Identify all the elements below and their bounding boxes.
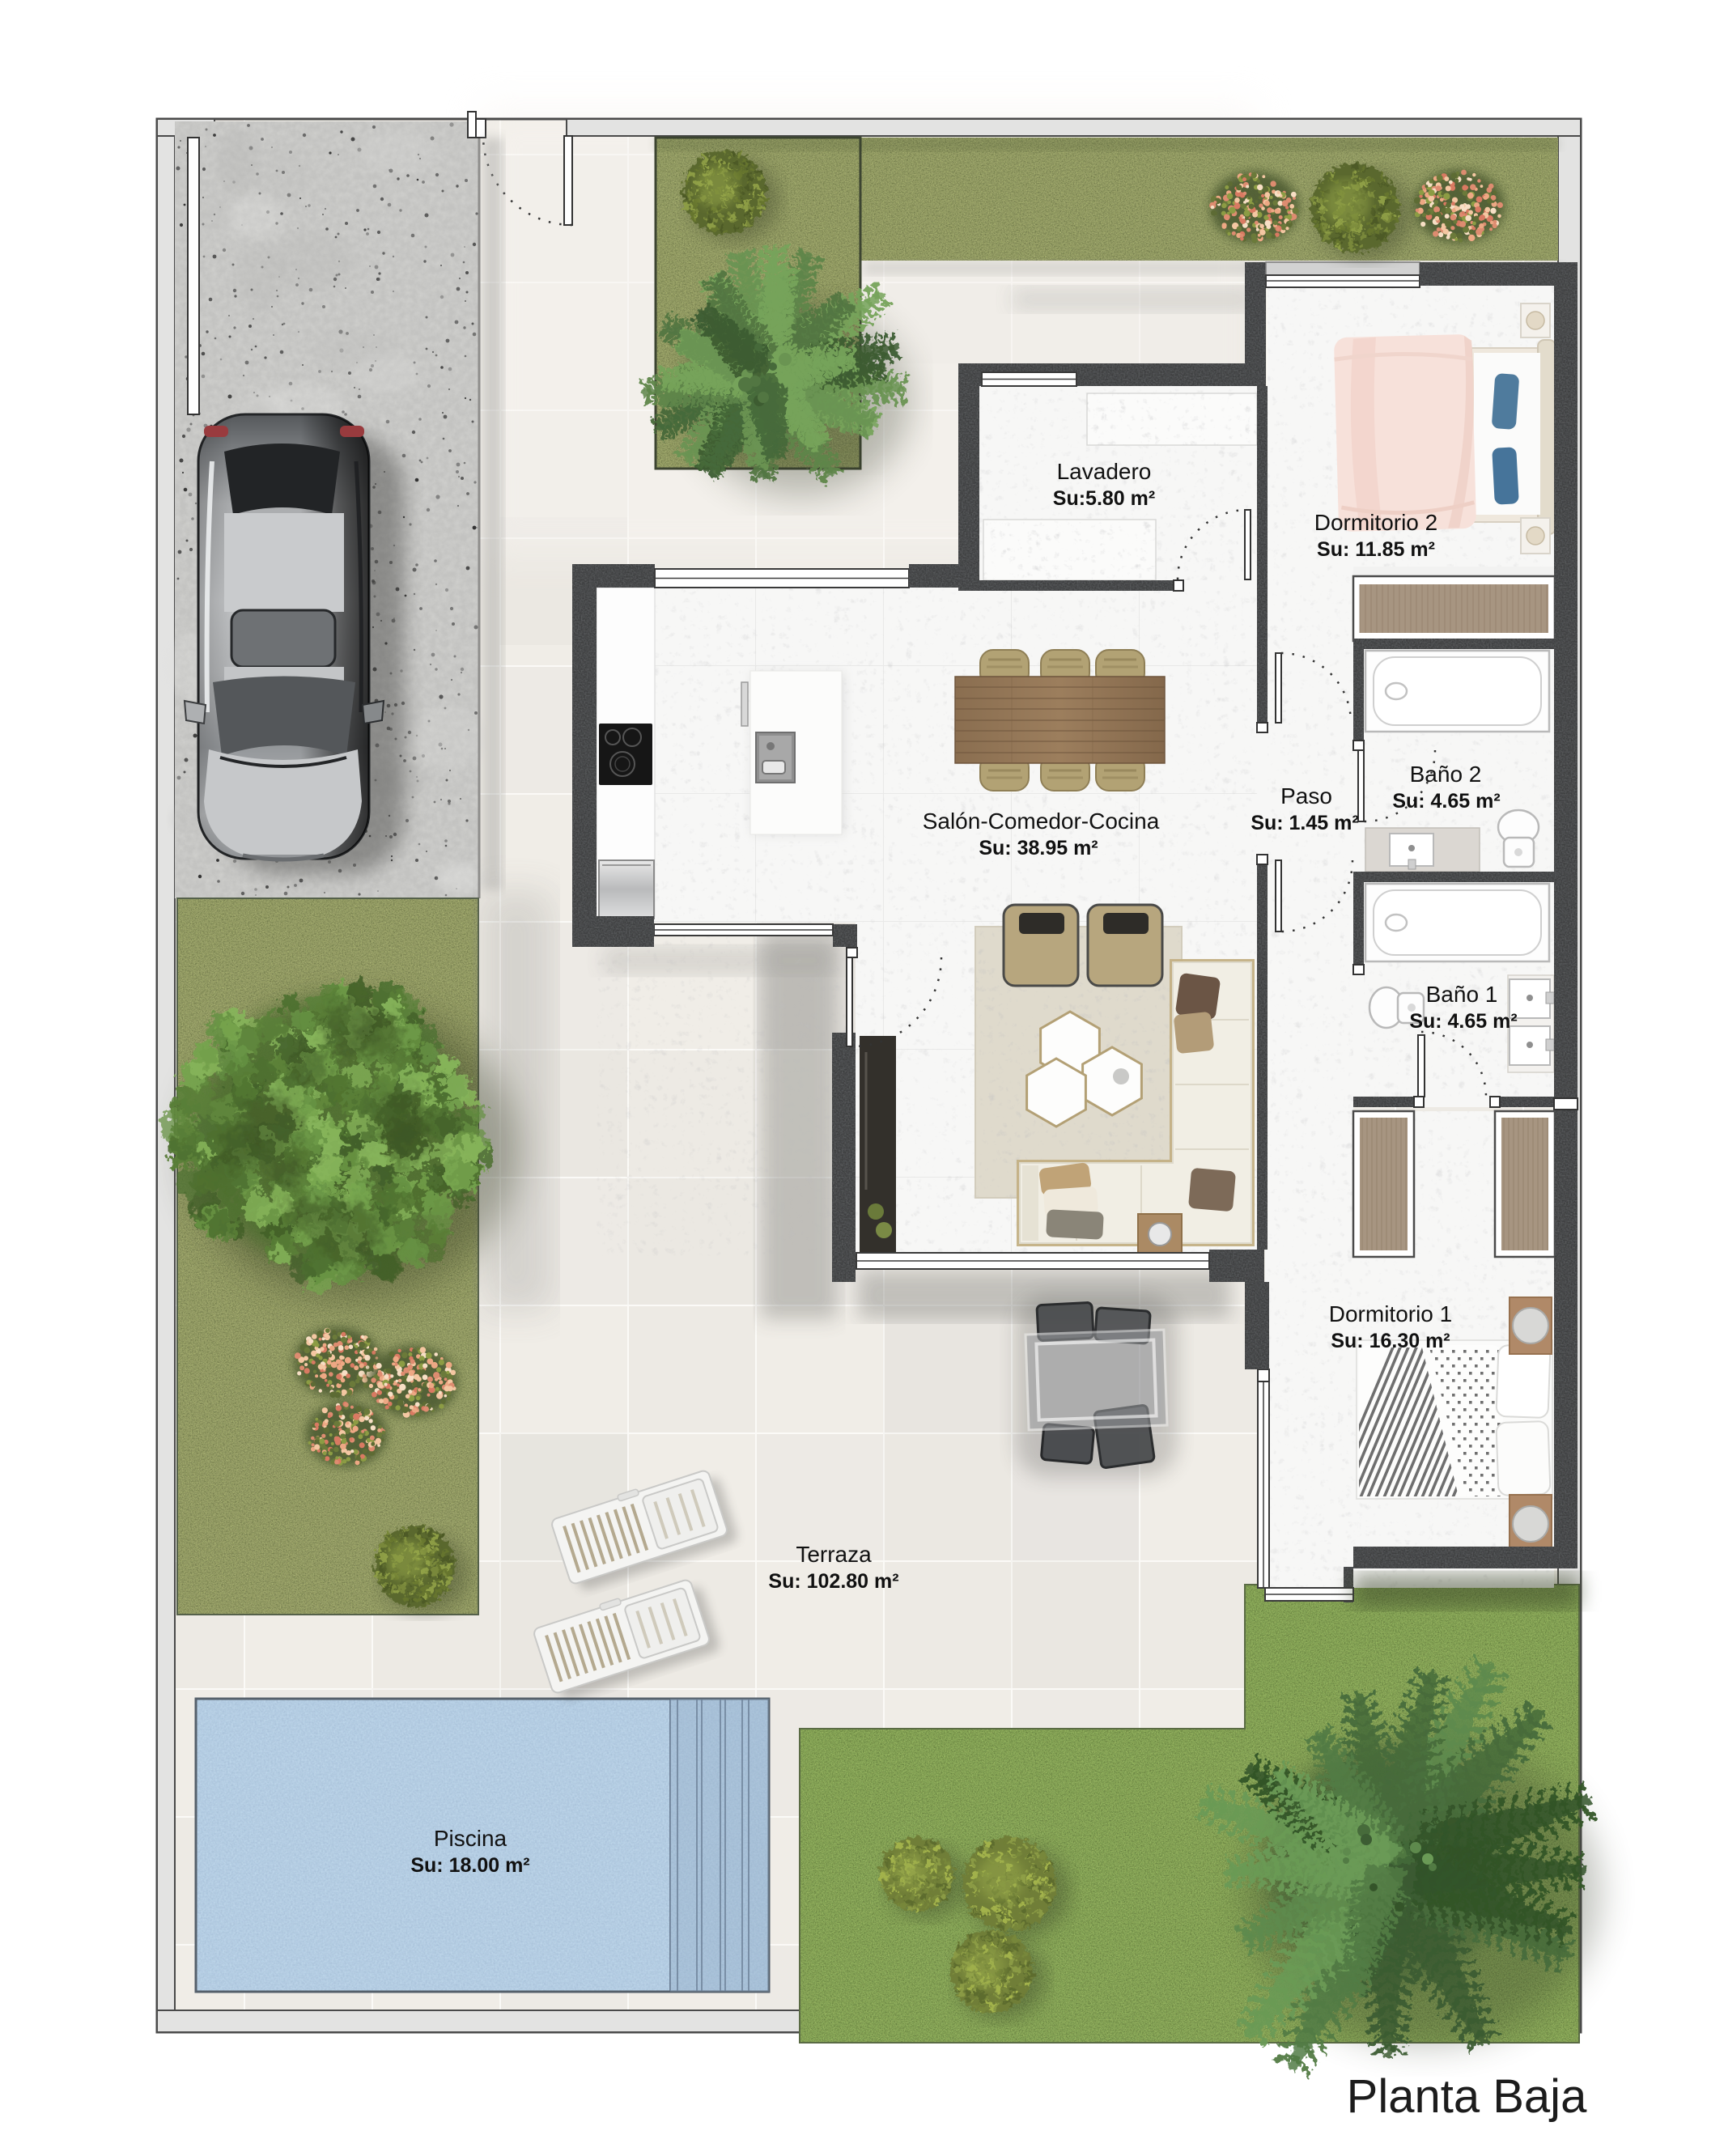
svg-text:Su: 102.80 m²: Su: 102.80 m² [768, 1570, 898, 1593]
svg-text:Su:5.80 m²: Su:5.80 m² [1053, 487, 1155, 510]
svg-text:Dormitorio 2: Dormitorio 2 [1314, 510, 1437, 535]
svg-text:Su: 16.30 m²: Su: 16.30 m² [1331, 1330, 1450, 1352]
svg-text:Planta Baja: Planta Baja [1347, 2070, 1587, 2123]
svg-text:Su: 11.85 m²: Su: 11.85 m² [1317, 538, 1435, 561]
svg-text:Lavadero: Lavadero [1057, 459, 1152, 484]
svg-text:Su: 18.00 m²: Su: 18.00 m² [410, 1854, 529, 1877]
svg-text:Piscina: Piscina [434, 1826, 507, 1851]
svg-text:Terraza: Terraza [796, 1542, 872, 1567]
svg-text:Su: 4.65 m²: Su: 4.65 m² [1409, 1010, 1517, 1033]
svg-text:Su: 38.95 m²: Su: 38.95 m² [979, 837, 1098, 859]
svg-text:Su: 1.45 m²: Su: 1.45 m² [1251, 812, 1358, 834]
svg-text:Baño 1: Baño 1 [1426, 982, 1498, 1007]
svg-text:Paso: Paso [1280, 783, 1332, 808]
svg-text:Baño 2: Baño 2 [1410, 762, 1482, 787]
svg-text:Dormitorio 1: Dormitorio 1 [1329, 1301, 1452, 1326]
svg-text:Su: 4.65 m²: Su: 4.65 m² [1392, 790, 1500, 813]
svg-text:Salón-Comedor-Cocina: Salón-Comedor-Cocina [923, 808, 1160, 834]
